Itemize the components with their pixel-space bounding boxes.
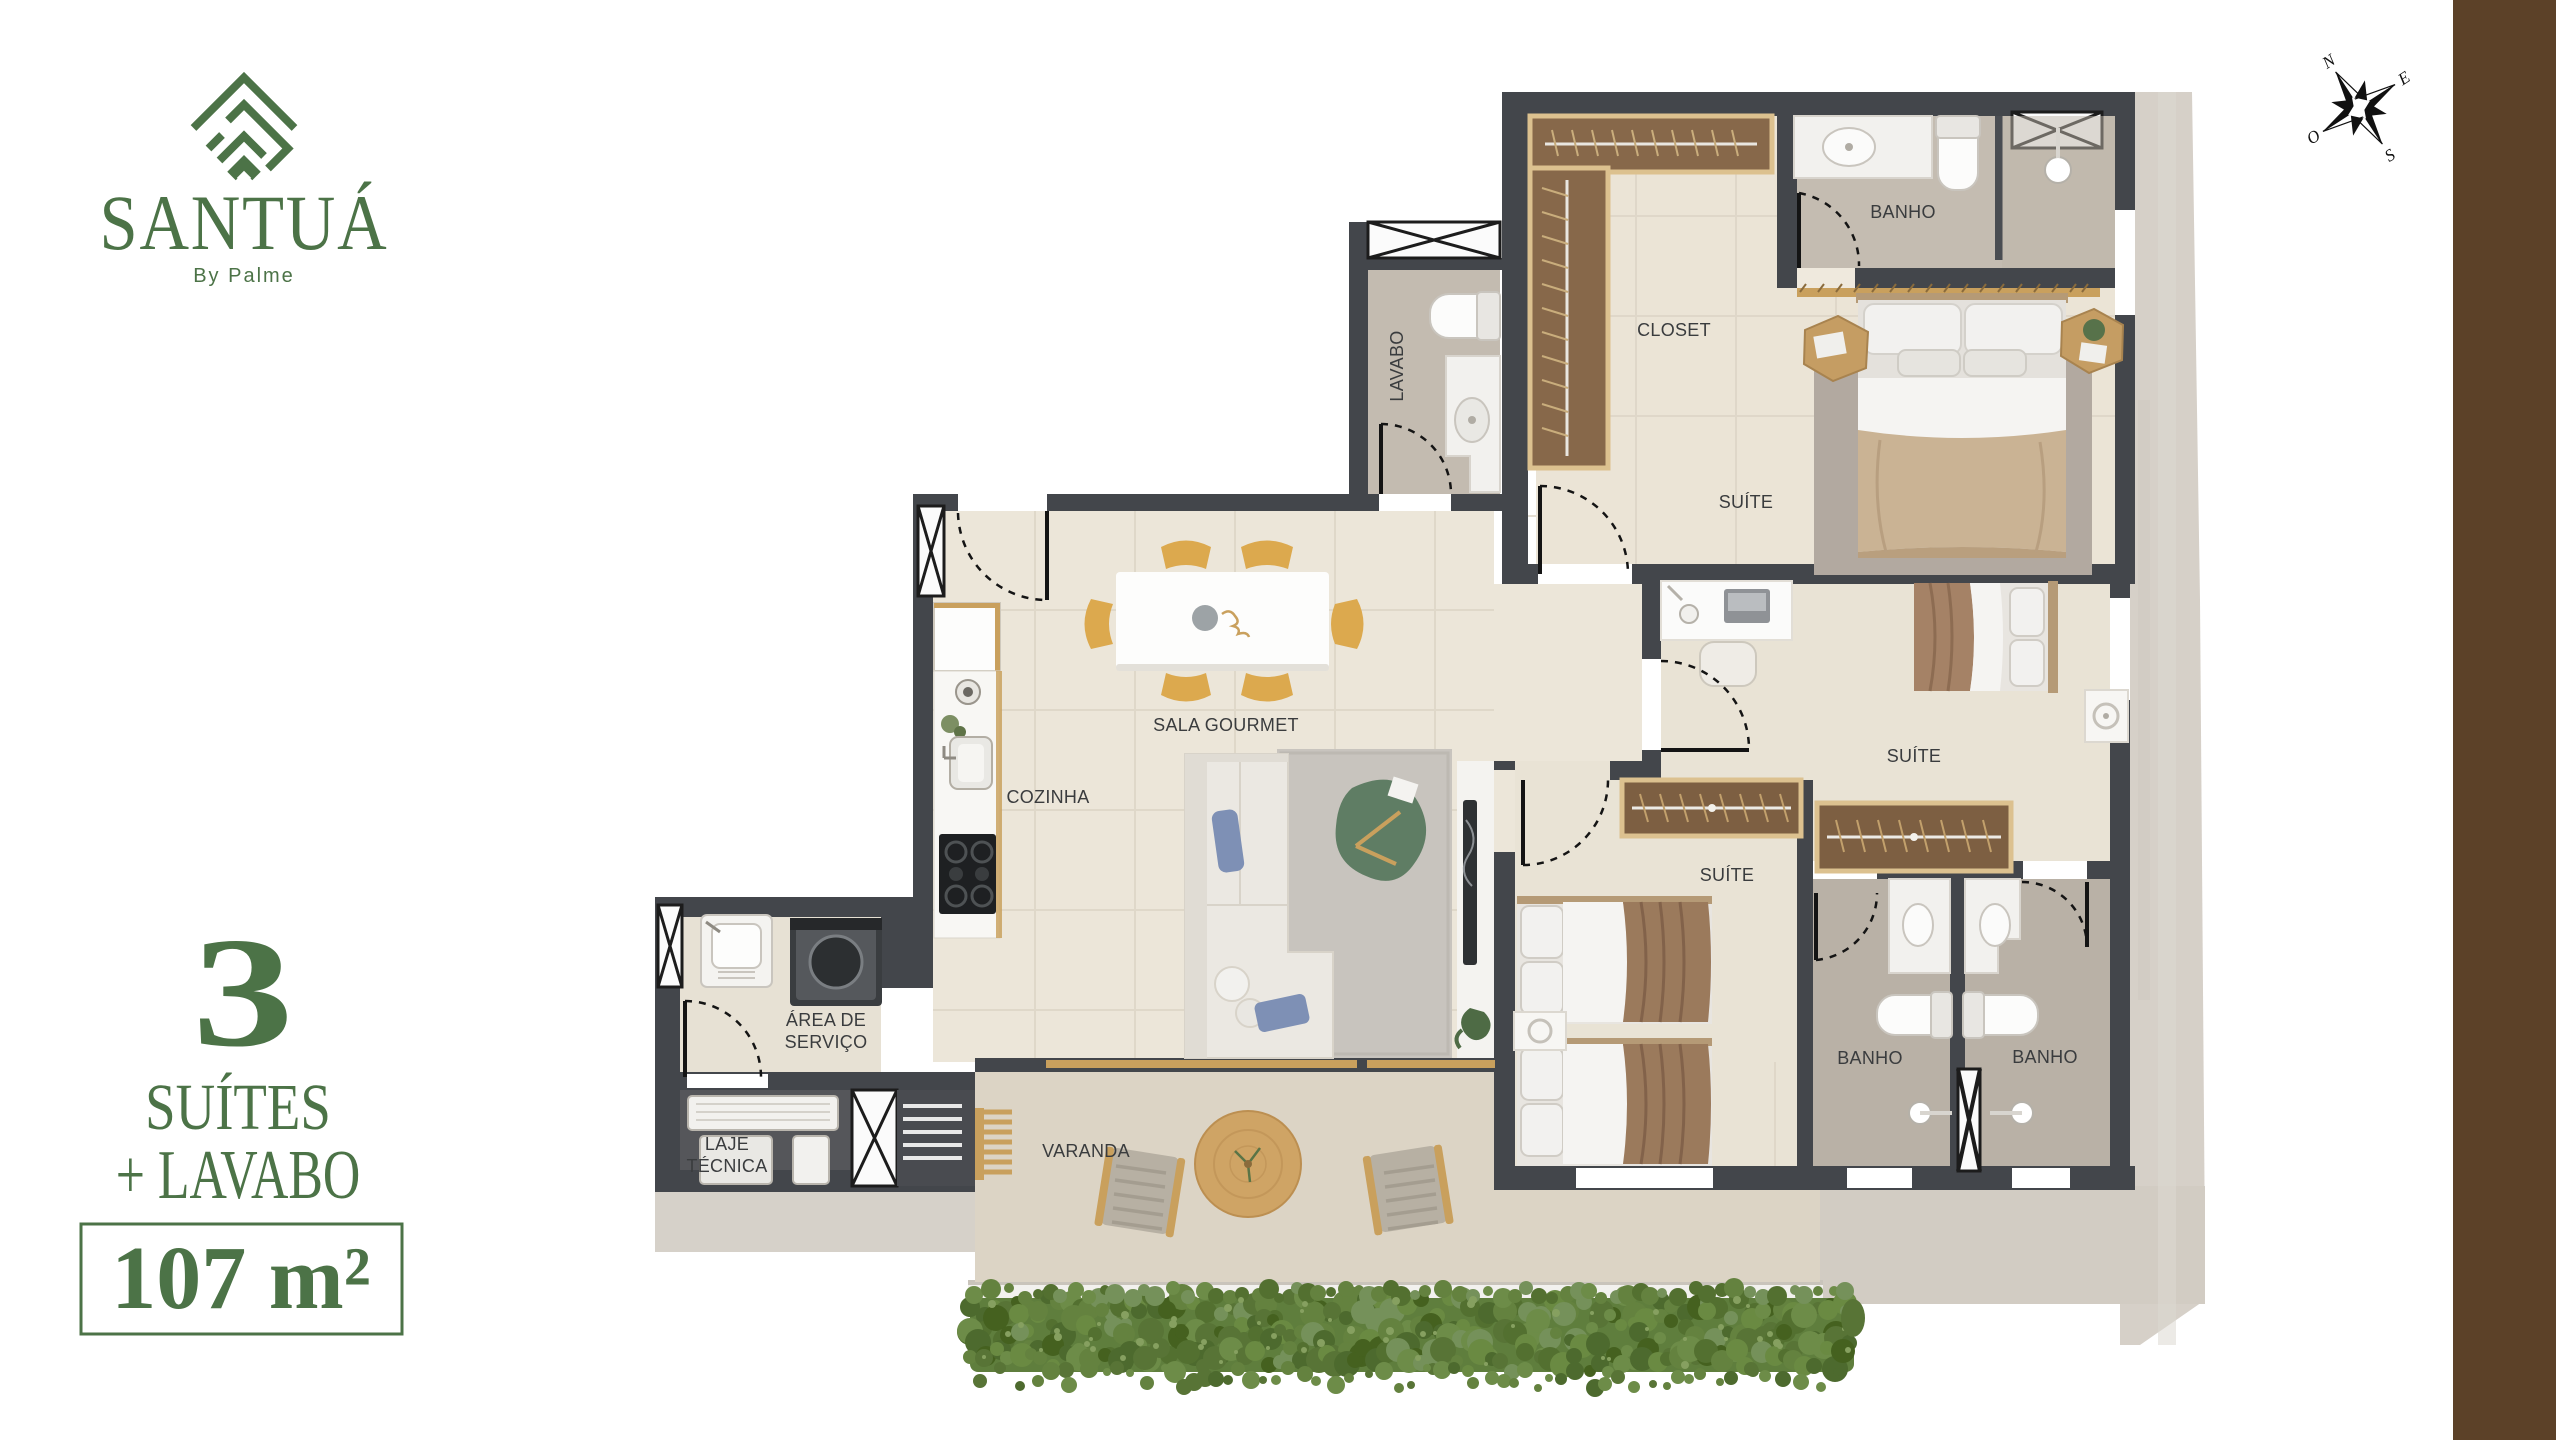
svg-text:3: 3 xyxy=(192,906,293,1079)
svg-text:SERVIÇO: SERVIÇO xyxy=(785,1032,868,1052)
svg-text:SALA GOURMET: SALA GOURMET xyxy=(1153,715,1299,735)
svg-text:ÁREA DE: ÁREA DE xyxy=(786,1010,866,1030)
svg-text:BANHO: BANHO xyxy=(1837,1048,1903,1068)
svg-text:TÉCNICA: TÉCNICA xyxy=(686,1156,767,1176)
svg-text:SUÍTES: SUÍTES xyxy=(145,1071,331,1144)
svg-text:SUÍTE: SUÍTE xyxy=(1700,865,1755,885)
svg-text:LAVABO: LAVABO xyxy=(1387,330,1407,401)
svg-text:VARANDA: VARANDA xyxy=(1042,1141,1130,1161)
svg-text:SUÍTE: SUÍTE xyxy=(1719,492,1774,512)
svg-text:BANHO: BANHO xyxy=(1870,202,1936,222)
svg-text:SUÍTE: SUÍTE xyxy=(1887,746,1942,766)
svg-text:O: O xyxy=(2303,126,2324,149)
svg-text:N: N xyxy=(2318,49,2340,73)
svg-text:CLOSET: CLOSET xyxy=(1637,320,1711,340)
svg-text:107 m²: 107 m² xyxy=(111,1229,370,1328)
svg-text:By Palme: By Palme xyxy=(193,265,295,287)
svg-text:LAJE: LAJE xyxy=(705,1134,749,1154)
svg-text:+ LAVABO: + LAVABO xyxy=(116,1137,361,1214)
svg-text:SANTUÁ: SANTUÁ xyxy=(100,180,389,266)
svg-text:S: S xyxy=(2381,145,2399,166)
svg-text:BANHO: BANHO xyxy=(2012,1047,2078,1067)
svg-text:E: E xyxy=(2394,67,2414,89)
svg-text:COZINHA: COZINHA xyxy=(1006,787,1089,807)
